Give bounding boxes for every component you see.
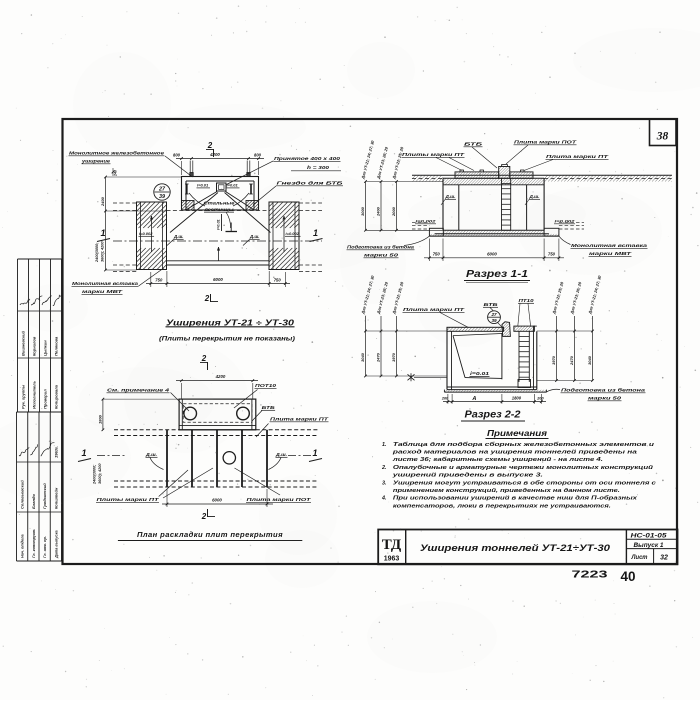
svg-text:2470: 2470 bbox=[376, 352, 381, 363]
svg-text:Опалубочные и арматурные че: Опалубочные и арматурные чертежи монолит… bbox=[393, 464, 654, 471]
svg-text:Исполнитель: Исполнитель bbox=[32, 380, 37, 409]
svg-text:Д.ш.: Д.ш. bbox=[145, 452, 157, 457]
svg-text:1970: 1970 bbox=[391, 352, 396, 362]
svg-text:7223: 7223 bbox=[572, 570, 609, 581]
svg-text:Д.ш.: Д.ш. bbox=[173, 234, 184, 239]
svg-text:Нач. отдела: Нач. отдела bbox=[21, 534, 25, 558]
svg-text:План раскладки плит перекры: План раскладки плит перекрытия bbox=[137, 530, 283, 539]
svg-text:Лист: Лист bbox=[631, 555, 649, 561]
svg-text:2470: 2470 bbox=[569, 355, 574, 366]
svg-text:Гл. конструкт.: Гл. конструкт. bbox=[32, 529, 36, 558]
svg-text:Уширения УТ-21 ÷ УТ-30: Уширения УТ-21 ÷ УТ-30 bbox=[166, 319, 295, 328]
svg-text:i=0.01: i=0.01 bbox=[197, 183, 209, 188]
svg-text:(Плиты перекрытия не показаны): (Плиты перекрытия не показаны) bbox=[159, 337, 295, 343]
svg-text:Копировала: Копировала bbox=[54, 384, 59, 409]
svg-text:Проверил: Проверил bbox=[43, 389, 48, 409]
svg-text:6000: 6000 bbox=[213, 277, 223, 282]
svg-text:Дата выпуска: Дата выпуска bbox=[54, 530, 58, 559]
svg-text:800: 800 bbox=[173, 153, 181, 158]
svg-text:750: 750 bbox=[274, 278, 282, 283]
svg-text:Д.ш.: Д.ш. bbox=[275, 452, 287, 457]
svg-text:i=0.002: i=0.002 bbox=[139, 231, 153, 236]
svg-text:уширений приведены в выпуск: уширений приведены в выпуске 3. bbox=[391, 472, 543, 479]
svg-text:6000: 6000 bbox=[212, 498, 222, 503]
svg-text:Корнилов: Корнилов bbox=[32, 336, 37, 356]
svg-text:лестницы: лестницы bbox=[203, 207, 233, 212]
svg-text:750: 750 bbox=[155, 278, 163, 283]
svg-text:Уширения могут устраиваться: Уширения могут устраиваться в обе сторон… bbox=[393, 479, 656, 486]
svg-text:38: 38 bbox=[656, 131, 669, 143]
svg-text:Таблица для подбора сборных: Таблица для подбора сборных железобетонн… bbox=[393, 441, 655, 448]
svg-text:Вишневский: Вишневский bbox=[21, 330, 26, 356]
svg-text:h = 300: h = 300 bbox=[307, 165, 329, 171]
svg-text:Гл. инж. пр.: Гл. инж. пр. bbox=[43, 536, 47, 558]
svg-text:240: 240 bbox=[114, 170, 118, 177]
svg-text:4200: 4200 bbox=[209, 152, 220, 157]
svg-text:применением конструкций, при: применением конструкций, приведенных на … bbox=[393, 487, 620, 494]
svg-text:НС-01-05: НС-01-05 bbox=[631, 534, 668, 540]
svg-text:750: 750 bbox=[433, 252, 441, 257]
svg-text:При использовании уширений: При использовании уширений в качестве ни… bbox=[393, 495, 639, 502]
svg-text:1963: 1963 bbox=[384, 556, 400, 563]
svg-text:листе 36; габаритные схемы: листе 36; габаритные схемы уширений - на… bbox=[391, 456, 602, 463]
svg-text:6000: 6000 bbox=[487, 251, 497, 256]
svg-text:Полякова: Полякова bbox=[54, 336, 59, 356]
svg-text:i=0.01: i=0.01 bbox=[470, 371, 490, 376]
svg-text:3040: 3040 bbox=[587, 355, 592, 365]
svg-text:2: 2 bbox=[204, 294, 210, 303]
svg-text:39: 39 bbox=[159, 194, 165, 200]
svg-text:200: 200 bbox=[441, 396, 449, 400]
svg-text:3.: 3. bbox=[382, 480, 387, 486]
svg-text:4.: 4. bbox=[381, 496, 387, 502]
svg-text:i=0.01: i=0.01 bbox=[217, 219, 221, 230]
svg-text:расход материалов на уширен: расход материалов на уширения тоннелей п… bbox=[391, 449, 637, 456]
svg-text:200: 200 bbox=[536, 396, 544, 400]
svg-text:800: 800 bbox=[254, 153, 262, 158]
svg-text:1.: 1. bbox=[382, 442, 387, 448]
svg-text:А: А bbox=[471, 396, 476, 402]
svg-text:2.: 2. bbox=[381, 465, 387, 471]
svg-text:Разрез 2-2: Разрез 2-2 bbox=[465, 410, 521, 421]
svg-text:Примечания: Примечания bbox=[487, 429, 547, 438]
svg-text:Стальные: Стальные bbox=[204, 201, 236, 206]
svg-text:32: 32 bbox=[660, 554, 668, 561]
svg-text:2400: 2400 bbox=[100, 196, 105, 207]
svg-text:2: 2 bbox=[201, 512, 207, 521]
svg-text:Выпуск 1: Выпуск 1 bbox=[634, 543, 665, 549]
svg-text:27: 27 bbox=[158, 187, 166, 193]
svg-text:3040: 3040 bbox=[360, 352, 365, 362]
svg-text:Цыпкин: Цыпкин bbox=[43, 340, 48, 356]
svg-text:2400(3000;: 2400(3000; bbox=[95, 242, 99, 263]
svg-text:1970: 1970 bbox=[551, 355, 556, 365]
svg-text:компенсаторов, люки в перек: компенсаторов, люки в перекрытиях не уст… bbox=[393, 503, 611, 509]
svg-text:Рук. группы: Рук. группы bbox=[21, 384, 26, 409]
svg-text:40: 40 bbox=[620, 569, 635, 584]
svg-text:1800: 1800 bbox=[512, 395, 522, 400]
svg-text:1: 1 bbox=[312, 448, 317, 458]
svg-text:Уширения тоннелей УТ-21÷УТ-3: Уширения тоннелей УТ-21÷УТ-30 bbox=[420, 543, 611, 553]
svg-text:ТД: ТД bbox=[382, 537, 402, 553]
svg-text:1: 1 bbox=[100, 228, 105, 238]
svg-text:3600); 4200: 3600); 4200 bbox=[101, 241, 105, 262]
